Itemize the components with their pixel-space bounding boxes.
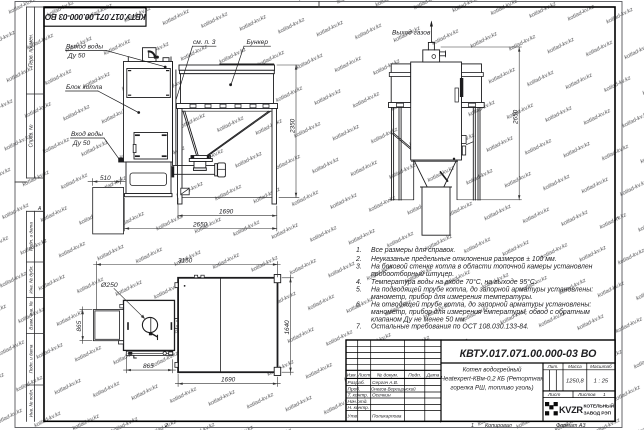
- svg-text:Выход воды: Выход воды: [66, 43, 103, 51]
- svg-text:клапаном Ду не менее 50 мм.: клапаном Ду не менее 50 мм.: [371, 317, 467, 324]
- svg-text:Формат А3: Формат А3: [556, 423, 586, 429]
- svg-text:Сергач А.В.: Сергач А.В.: [372, 380, 398, 386]
- svg-text:Инв. № подл.: Инв. № подл.: [29, 389, 34, 418]
- svg-text:Вход воды: Вход воды: [71, 130, 103, 138]
- svg-text:1.: 1.: [356, 247, 362, 254]
- svg-text:На отводящей трубе котла, до з: На отводящей трубе котла, до запорной ар…: [371, 300, 591, 308]
- svg-text:1: 1: [603, 392, 606, 398]
- svg-text:На боковой стенке котла в обла: На боковой стенке котла в области топочн…: [371, 263, 593, 271]
- svg-text:КВТУ.017.071.00.000-03 ВО: КВТУ.017.071.00.000-03 ВО: [44, 12, 145, 22]
- svg-text:Остальные требования по ОСТ 10: Остальные требования по ОСТ 108.030.133-…: [371, 323, 529, 331]
- svg-text:Лист: Лист: [547, 392, 560, 398]
- svg-text:Н. контр.: Н. контр.: [348, 405, 370, 411]
- svg-text:1 : 25: 1 : 25: [594, 379, 609, 385]
- svg-text:5.: 5.: [356, 287, 362, 294]
- svg-text:манометр, прибор для измерения: манометр, прибор для измерения температу…: [371, 293, 533, 301]
- svg-text:1640: 1640: [284, 320, 291, 335]
- svg-text:Подп. и дата: Подп. и дата: [29, 344, 34, 373]
- svg-text:Ду 50: Ду 50: [72, 140, 91, 147]
- svg-text:Поликарпова: Поликарпова: [372, 414, 402, 420]
- svg-text:4.: 4.: [356, 279, 362, 286]
- svg-text:Инв. № дубл.: Инв. № дубл.: [29, 265, 34, 293]
- svg-text:Нач.отд.: Нач.отд.: [348, 399, 368, 405]
- svg-text:Подп.: Подп.: [408, 372, 421, 378]
- svg-text:865: 865: [143, 363, 154, 370]
- svg-text:1690: 1690: [221, 377, 236, 384]
- svg-text:1250,8: 1250,8: [566, 379, 585, 385]
- svg-text:Выход газов: Выход газов: [392, 29, 431, 37]
- svg-text:Бункер: Бункер: [247, 39, 269, 46]
- svg-text:манометр, прибор для измерения: манометр, прибор для измерения емператур…: [371, 308, 590, 316]
- svg-text:Блок котла: Блок котла: [66, 84, 102, 91]
- svg-text:1: 1: [471, 423, 474, 429]
- svg-text:пробоотборный штуцер.: пробоотборный штуцер.: [371, 270, 454, 278]
- svg-text:3.: 3.: [356, 264, 362, 271]
- svg-text:2350: 2350: [290, 118, 297, 134]
- svg-text:Утв.: Утв.: [348, 414, 359, 420]
- svg-text:Справ. №: Справ. №: [29, 124, 35, 147]
- svg-text:Онегов-Верещинский: Онегов-Верещинский: [371, 386, 416, 391]
- svg-text:Температура воды на входе 70°С: Температура воды на входе 70°С, на выход…: [371, 278, 537, 286]
- svg-text:Масштаб: Масштаб: [590, 364, 612, 369]
- svg-text:510: 510: [100, 175, 111, 182]
- svg-text:Листов: Листов: [577, 392, 596, 398]
- svg-text:2650: 2650: [192, 221, 208, 228]
- svg-text:Взам. инв. №: Взам. инв. №: [29, 301, 34, 329]
- svg-text:Осечкин: Осечкин: [372, 393, 391, 399]
- svg-text:2: 2: [164, 423, 168, 429]
- svg-text:Лист: Лист: [357, 372, 370, 378]
- svg-text:865: 865: [76, 320, 83, 331]
- svg-text:Котел водогрейный: Котел водогрейный: [463, 367, 522, 374]
- svg-text:6.: 6.: [356, 301, 362, 308]
- svg-text:А: А: [615, 215, 619, 220]
- svg-text:Ду 50: Ду 50: [67, 53, 86, 60]
- svg-text:Копировал: Копировал: [485, 423, 512, 429]
- svg-text:На подводящей трубе котла, до: На подводящей трубе котла, до запорной а…: [371, 286, 593, 294]
- svg-text:Изм.: Изм.: [347, 372, 357, 378]
- svg-text:3150: 3150: [178, 257, 193, 264]
- svg-text:Т. контр.: Т. контр.: [348, 393, 369, 399]
- svg-text:Подп. и дата: Подп. и дата: [29, 222, 34, 251]
- svg-text:2650: 2650: [513, 109, 520, 125]
- svg-text:Дата: Дата: [426, 372, 440, 378]
- svg-text:Ø250: Ø250: [100, 282, 118, 289]
- svg-text:Лит.: Лит.: [547, 364, 559, 369]
- svg-text:Разраб.: Разраб.: [348, 380, 365, 386]
- svg-text:Heatexpert-КВм-0,2 КБ (Ретортн: Heatexpert-КВм-0,2 КБ (Ретортная: [441, 376, 545, 383]
- svg-text:горелка РШ, топливо уголь): горелка РШ, топливо уголь): [450, 385, 533, 392]
- svg-text:ЗАВОД РЭП: ЗАВОД РЭП: [584, 411, 612, 417]
- svg-text:Масса: Масса: [568, 364, 582, 369]
- svg-text:Проб.: Проб.: [348, 386, 361, 392]
- svg-text:1690: 1690: [219, 209, 234, 216]
- svg-text:см. п. 3: см. п. 3: [193, 39, 216, 46]
- svg-text:KVZR: KVZR: [559, 405, 583, 415]
- svg-text:Неуказаные предельные отклонен: Неуказаные предельные отклонения размеро…: [371, 255, 557, 263]
- svg-text:7.: 7.: [356, 324, 362, 331]
- svg-text:КВТУ.017.071.00.000-03 ВО: КВТУ.017.071.00.000-03 ВО: [460, 348, 598, 360]
- svg-text:№ докум.: № докум.: [377, 372, 398, 378]
- svg-text:2.: 2.: [355, 256, 362, 263]
- svg-text:Все размеры для справок.: Все размеры для справок.: [371, 246, 456, 254]
- svg-text:Перв. примен.: Перв. примен.: [29, 34, 35, 67]
